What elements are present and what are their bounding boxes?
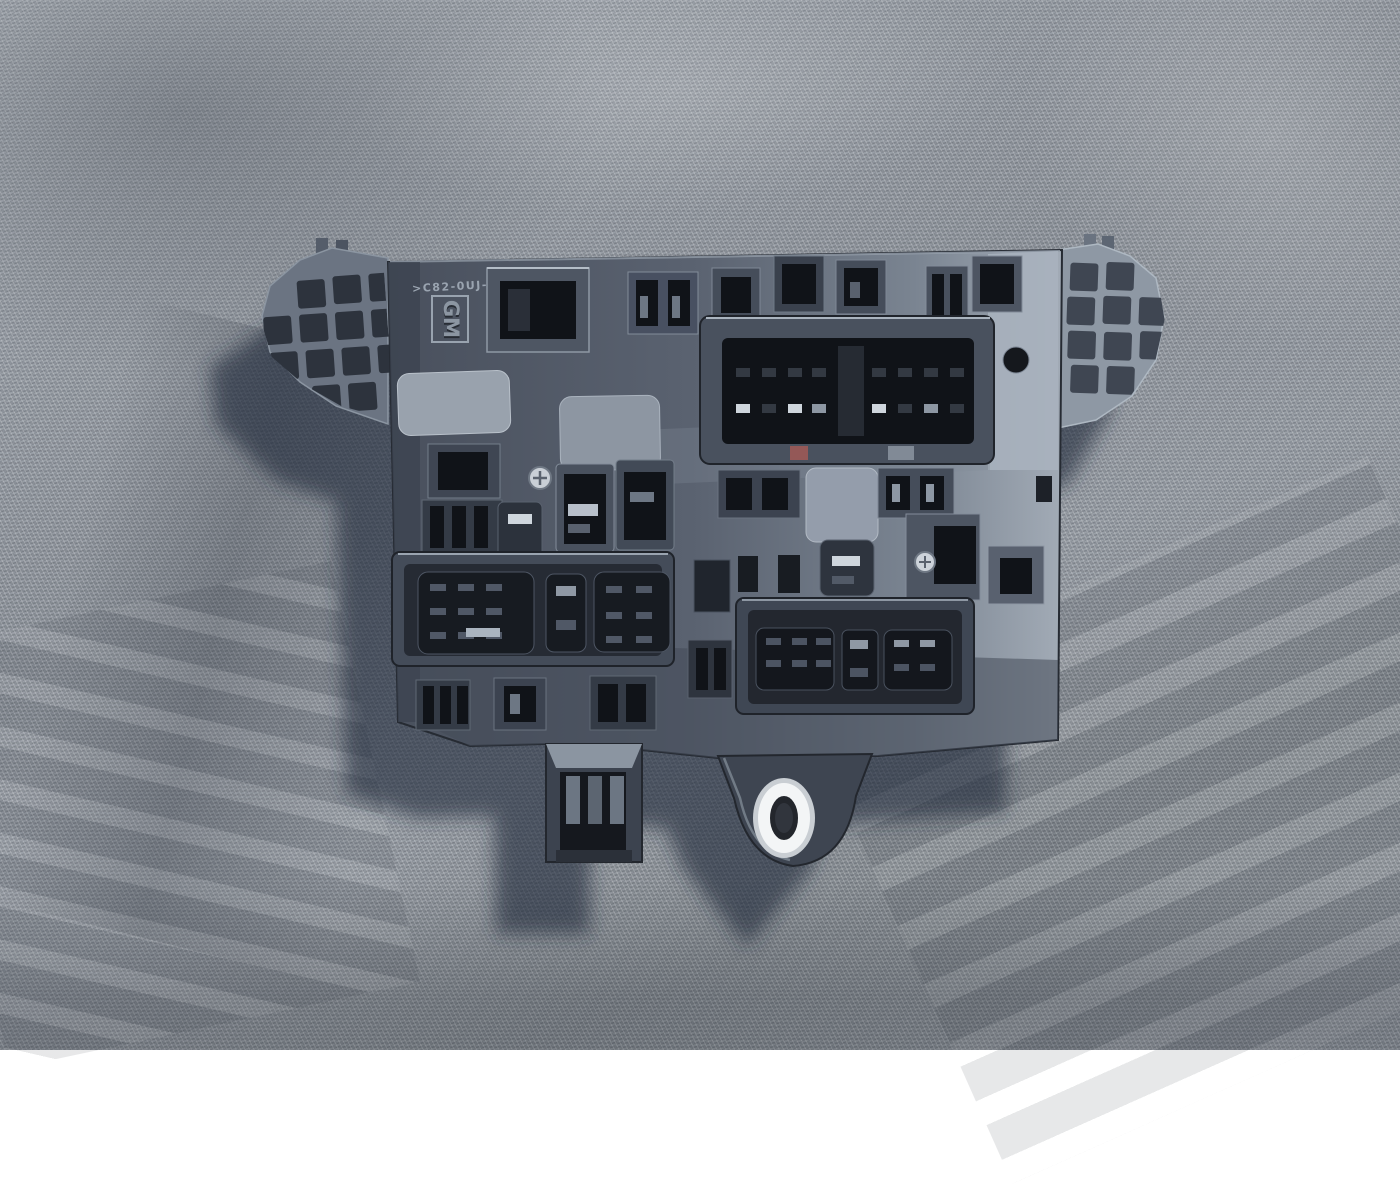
connector-socket — [820, 540, 874, 596]
connector-socket-pair — [628, 272, 698, 334]
connector-cavity — [594, 572, 670, 652]
right-mounting-bracket — [1058, 234, 1171, 428]
lower-left-connector-block — [392, 552, 674, 666]
prong-connector — [416, 680, 470, 730]
lower-right-connector-block — [736, 598, 974, 714]
main-harness-connector — [700, 316, 994, 464]
prong — [610, 776, 624, 824]
edge-slot — [738, 556, 758, 592]
edge-slot — [778, 555, 800, 593]
bushing-hole-inner — [775, 803, 793, 833]
relay-socket — [556, 464, 614, 552]
bottom-connector-tab — [546, 744, 642, 862]
connector-cavity — [884, 630, 952, 690]
connector-socket — [428, 444, 500, 498]
tab-top-highlight — [546, 744, 642, 768]
connector-cavity — [756, 628, 834, 690]
connector-housing — [906, 514, 980, 600]
red-marking — [790, 446, 808, 460]
connector-socket — [836, 260, 886, 314]
connector-socket-pair — [590, 676, 656, 730]
connector-socket-pair — [878, 468, 954, 518]
latch-detail — [888, 446, 914, 460]
connector-socket — [972, 256, 1022, 312]
connector-socket — [494, 678, 546, 730]
photo-scene: >C82-0UJ-41B< GM GM — [0, 0, 1400, 1050]
prong-connector — [422, 500, 502, 556]
connector-housing — [487, 268, 589, 352]
cavity-divider — [838, 346, 864, 436]
connector-socket — [988, 546, 1044, 604]
connector-socket — [712, 268, 760, 322]
connector-cavity — [418, 572, 534, 654]
gm-logo-text: GM — [439, 300, 463, 338]
connector-socket — [498, 502, 542, 558]
prong — [588, 776, 602, 824]
edge-slot — [694, 560, 730, 612]
tab-lip — [556, 850, 632, 862]
connector-cavity — [546, 574, 586, 652]
edge-slot — [1036, 476, 1052, 502]
fuse-box-part: >C82-0UJ-41B< GM GM — [0, 0, 1400, 1050]
blank-pad — [397, 370, 511, 436]
connector-socket-pair — [718, 470, 800, 518]
blank-pad — [806, 468, 878, 542]
prong-connector — [688, 640, 732, 698]
connector-socket — [774, 256, 824, 312]
prong — [566, 776, 580, 824]
connector-cavity — [842, 630, 878, 690]
relay-socket — [616, 460, 674, 550]
screw-hole — [1003, 347, 1029, 373]
